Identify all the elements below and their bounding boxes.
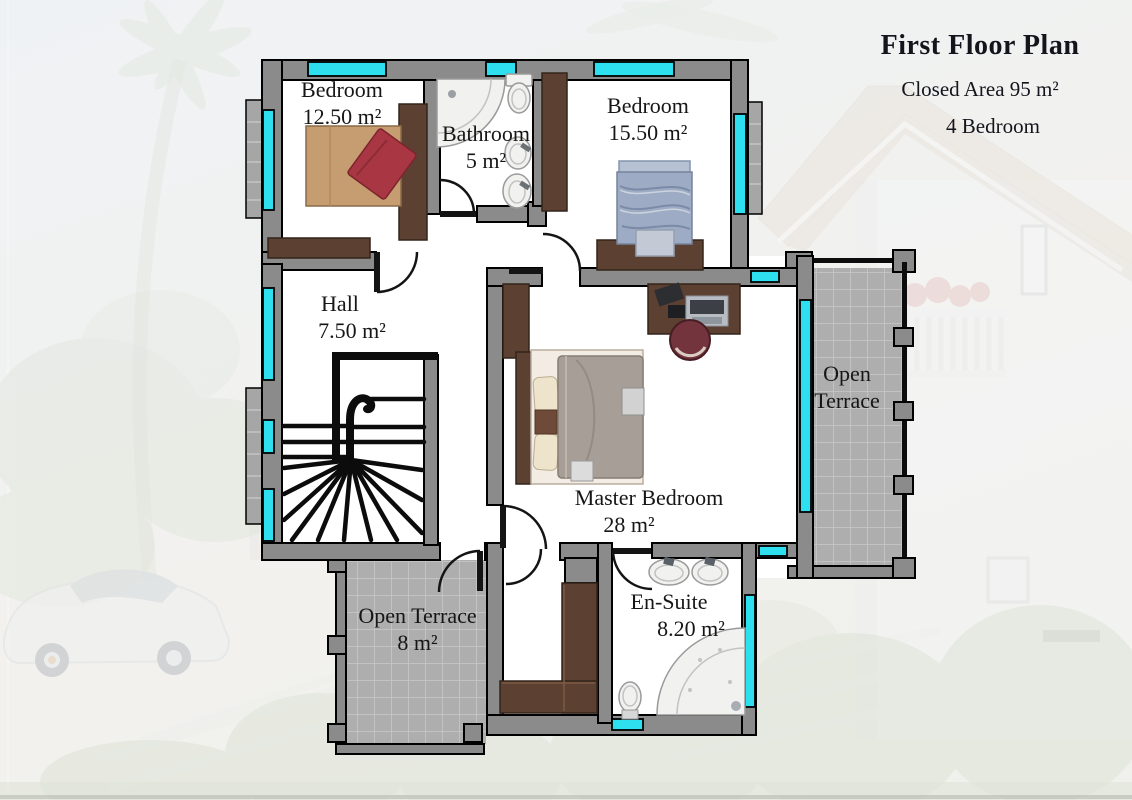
closed-area-text: Closed Area 95 m² <box>845 77 1115 102</box>
pillow <box>533 433 559 471</box>
window <box>263 489 274 541</box>
bench <box>571 461 593 481</box>
wardrobe <box>542 73 567 211</box>
window <box>612 719 643 730</box>
window <box>263 420 274 453</box>
wall-segment <box>262 543 440 560</box>
wardrobe <box>503 284 529 358</box>
window <box>263 288 274 380</box>
duvet <box>558 356 643 478</box>
window <box>745 595 755 707</box>
wall-segment <box>652 543 756 558</box>
wall-segment <box>424 355 438 545</box>
window <box>751 271 779 282</box>
stool <box>636 230 674 256</box>
window <box>800 300 811 512</box>
wall-segment <box>598 543 612 723</box>
wall-segment <box>565 558 597 583</box>
stair-wall <box>332 352 438 360</box>
floor-plan-page: Bedroom 12.50 m² Bathroom 5 m² Bedroom 1… <box>0 0 1132 800</box>
window <box>308 62 386 76</box>
wall-segment <box>487 286 503 505</box>
open-terrace-right-floor <box>813 268 903 566</box>
window <box>759 546 787 556</box>
dresser <box>268 238 370 258</box>
plan-title: First Floor Plan <box>845 30 1115 62</box>
headboard <box>516 352 531 484</box>
plan-header: First Floor Plan Closed Area 95 m² 4 Bed… <box>845 30 1115 139</box>
office-chair <box>670 320 710 360</box>
window <box>734 114 746 214</box>
window <box>263 110 274 210</box>
bedroom-count-text: 4 Bedroom <box>845 114 1115 139</box>
pillow <box>533 376 559 414</box>
nightstand <box>622 388 644 415</box>
window <box>594 62 674 76</box>
open-terrace-bottom-floor <box>346 560 486 744</box>
